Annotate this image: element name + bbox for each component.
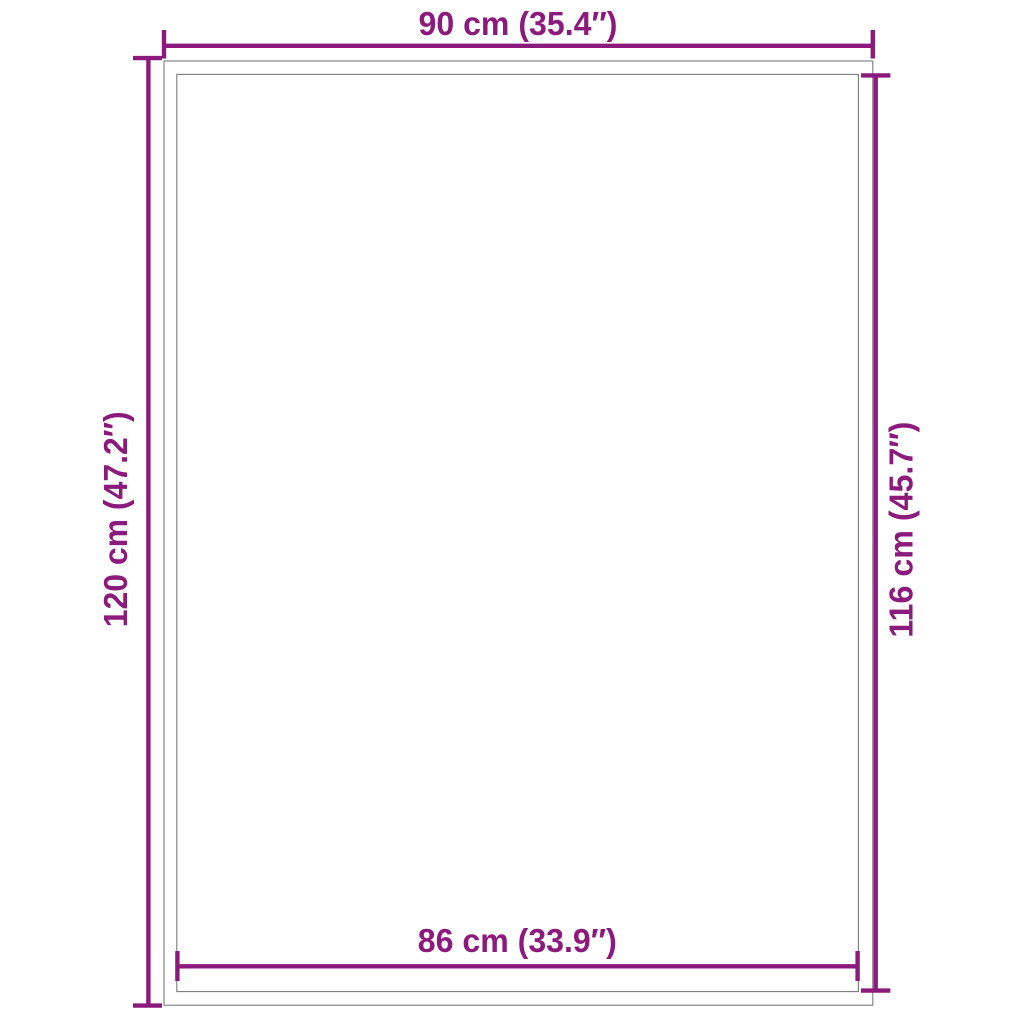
svg-text:90 cm (35.4″): 90 cm (35.4″) [419,5,618,42]
svg-text:116 cm (45.7″): 116 cm (45.7″) [883,422,920,638]
svg-text:86 cm (33.9″): 86 cm (33.9″) [418,922,617,959]
svg-text:120 cm (47.2″): 120 cm (47.2″) [97,411,134,627]
